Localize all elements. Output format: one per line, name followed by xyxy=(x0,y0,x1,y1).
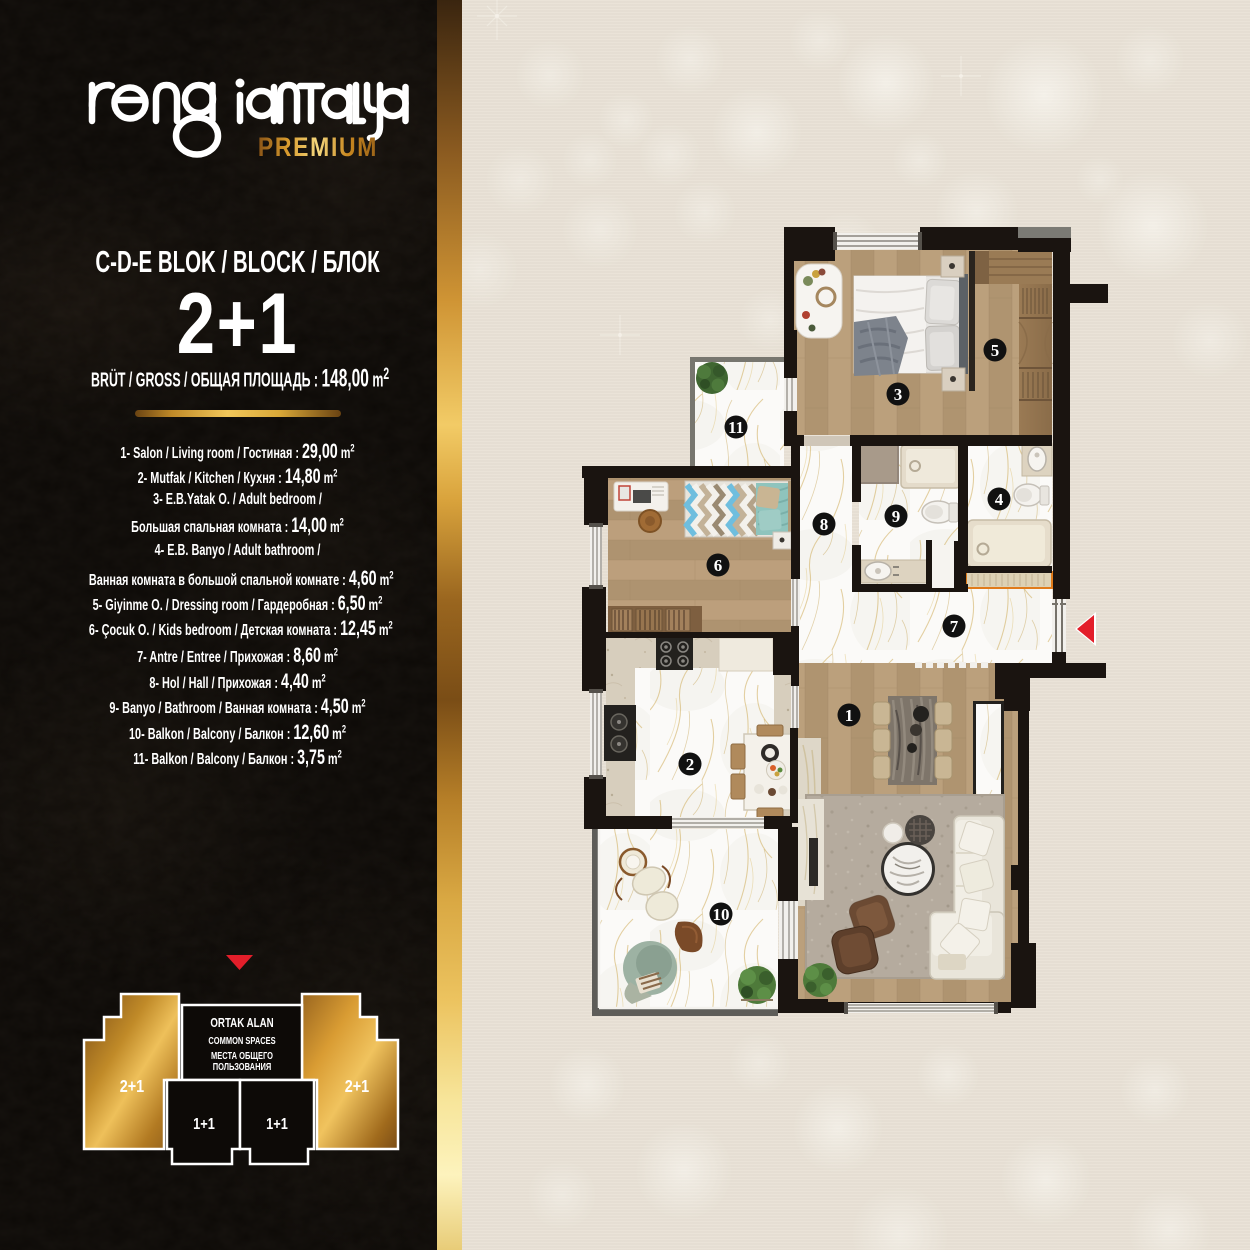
svg-text:4: 4 xyxy=(995,490,1004,509)
svg-text:7: 7 xyxy=(950,617,959,636)
svg-text:2: 2 xyxy=(686,755,695,774)
svg-text:11: 11 xyxy=(728,418,744,437)
svg-text:6: 6 xyxy=(714,556,723,575)
svg-text:9: 9 xyxy=(892,507,901,526)
svg-text:10: 10 xyxy=(713,905,730,924)
svg-text:3: 3 xyxy=(894,385,903,404)
svg-text:5: 5 xyxy=(991,341,1000,360)
svg-text:1: 1 xyxy=(845,706,854,725)
svg-text:8: 8 xyxy=(820,515,829,534)
